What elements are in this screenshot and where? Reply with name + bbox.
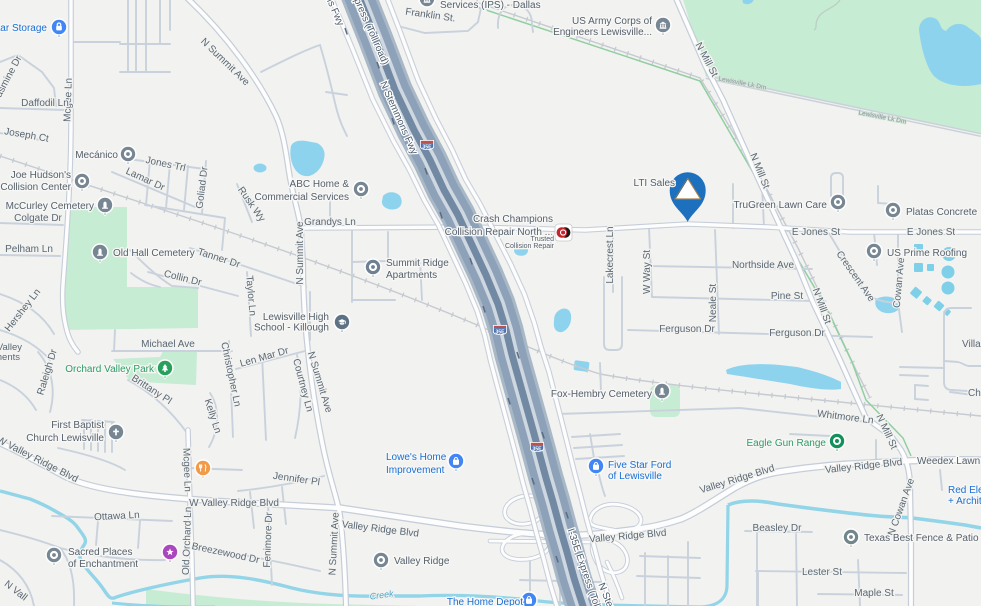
svg-text:35E: 35E (422, 144, 432, 150)
svg-text:Sacred Places: Sacred Places (68, 547, 132, 558)
svg-text:Five Star Ford: Five Star Ford (608, 460, 671, 471)
svg-text:First Baptist: First Baptist (51, 420, 104, 431)
svg-text:+ Archite: + Archite (948, 496, 981, 507)
svg-text:TruGreen Lawn Care: TruGreen Lawn Care (733, 200, 827, 211)
svg-text:35E: 35E (495, 329, 505, 335)
svg-text:Lewisville High: Lewisville High (263, 312, 329, 323)
svg-text:W Valley Ridge Blvd: W Valley Ridge Blvd (189, 498, 279, 509)
svg-text:Apartments: Apartments (386, 270, 437, 281)
svg-text:Valley Ridge: Valley Ridge (394, 556, 450, 567)
svg-text:Village: Village (962, 339, 981, 350)
svg-text:Crash Champions: Crash Champions (473, 214, 553, 225)
svg-text:W Way St: W Way St (642, 250, 653, 294)
svg-text:Weedex Lawn C: Weedex Lawn C (917, 456, 981, 467)
svg-text:Collision Center: Collision Center (0, 182, 71, 193)
svg-text:Engineers Lewisville...: Engineers Lewisville... (553, 27, 652, 38)
svg-text:Mcgee Ln: Mcgee Ln (180, 448, 193, 492)
svg-text:Trusted: Trusted (531, 236, 555, 243)
svg-text:Old Hall Cemetery: Old Hall Cemetery (113, 248, 195, 259)
svg-text:E Jones St: E Jones St (907, 227, 956, 238)
svg-text:Pine St: Pine St (771, 291, 803, 302)
svg-text:Colgate Dr: Colgate Dr (14, 213, 62, 224)
svg-text:LTI Sales: LTI Sales (634, 178, 676, 189)
svg-text:Lowe's Home: Lowe's Home (386, 452, 447, 463)
svg-text:Ferguson Dr: Ferguson Dr (769, 328, 825, 339)
svg-text:US Army Corps of: US Army Corps of (572, 16, 652, 27)
svg-text:tar Storage: tar Storage (0, 23, 47, 34)
svg-text:Mecánico: Mecánico (75, 150, 118, 161)
svg-text:McCurley Cemetery: McCurley Cemetery (6, 201, 94, 212)
svg-text:Northside Ave: Northside Ave (732, 260, 795, 271)
svg-text:Neale St: Neale St (708, 284, 719, 323)
svg-text:Lakecrest Ln: Lakecrest Ln (605, 226, 616, 283)
svg-text:E Jones St: E Jones St (792, 227, 841, 238)
svg-text:Orchard Valley Park: Orchard Valley Park (65, 364, 155, 375)
svg-text:of Lewisville: of Lewisville (608, 471, 662, 482)
svg-text:Red Eleg: Red Eleg (948, 485, 981, 496)
svg-text:Che: Che (968, 388, 981, 399)
svg-text:Eagle Gun Range: Eagle Gun Range (746, 438, 826, 449)
svg-text:Texas Best Fence & Patio: Texas Best Fence & Patio (864, 533, 979, 544)
svg-text:ABC Home &: ABC Home & (290, 179, 350, 190)
svg-text:Daffodil Ln: Daffodil Ln (21, 98, 69, 109)
svg-text:N Summit Ave: N Summit Ave (295, 221, 306, 285)
svg-text:Beasley Dr: Beasley Dr (753, 523, 803, 534)
svg-text:The Home Depot: The Home Depot (447, 597, 523, 606)
svg-text:Maple St: Maple St (854, 588, 894, 599)
svg-text:Grandys Ln: Grandys Ln (304, 217, 356, 228)
svg-text:US Prime Roofing: US Prime Roofing (887, 248, 967, 259)
svg-text:Platas Concrete: Platas Concrete (906, 207, 978, 218)
svg-text:Collision Repair: Collision Repair (505, 243, 555, 250)
svg-text:Fenimore Dr: Fenimore Dr (262, 511, 275, 568)
svg-text:Services (IPS) - Dallas: Services (IPS) - Dallas (440, 0, 541, 11)
svg-text:Improvement: Improvement (386, 465, 445, 476)
svg-text:Lester St: Lester St (802, 567, 842, 578)
svg-text:ments: ments (0, 352, 20, 363)
svg-text:Summit Ridge: Summit Ridge (386, 258, 449, 269)
svg-text:Commercial Services: Commercial Services (255, 192, 349, 203)
svg-text:Ferguson Dr: Ferguson Dr (659, 324, 715, 335)
svg-text:Michael Ave: Michael Ave (141, 339, 195, 350)
svg-text:Church Lewisville: Church Lewisville (26, 433, 104, 444)
svg-text:35E: 35E (532, 446, 542, 452)
svg-text:Joe Hudson's: Joe Hudson's (11, 170, 71, 181)
svg-text:of Enchantment: of Enchantment (68, 559, 138, 570)
svg-text:Fox-Hembry Cemetery: Fox-Hembry Cemetery (551, 389, 652, 400)
svg-text:Pelham Ln: Pelham Ln (5, 244, 53, 255)
svg-text:School - Killough: School - Killough (254, 323, 329, 334)
